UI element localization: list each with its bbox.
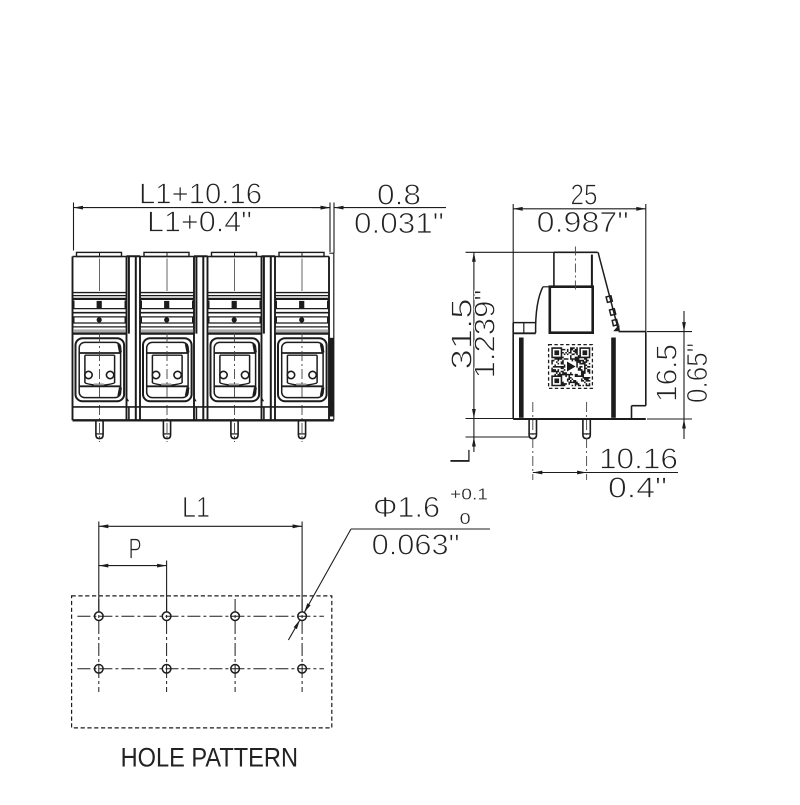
svg-text:Φ1.6: Φ1.6 [373, 492, 440, 524]
svg-text:0.031": 0.031" [354, 208, 444, 240]
svg-text:0.65": 0.65" [682, 343, 714, 403]
svg-text:0: 0 [460, 511, 471, 528]
svg-text:0.063": 0.063" [372, 530, 460, 562]
svg-text:L1: L1 [182, 492, 210, 524]
svg-text:P: P [129, 534, 142, 566]
svg-text:10.16: 10.16 [599, 444, 678, 476]
svg-text:0.8: 0.8 [377, 180, 421, 212]
svg-text:1.239": 1.239" [470, 290, 502, 379]
svg-text:0.4": 0.4" [608, 473, 667, 505]
svg-text:0.987": 0.987" [537, 207, 629, 239]
svg-text:L1+0.4": L1+0.4" [147, 207, 252, 239]
svg-text:HOLE PATTERN: HOLE PATTERN [121, 743, 298, 773]
svg-text:16.5: 16.5 [652, 344, 684, 402]
svg-text:L: L [445, 448, 477, 464]
svg-text:+0.1: +0.1 [450, 487, 488, 504]
